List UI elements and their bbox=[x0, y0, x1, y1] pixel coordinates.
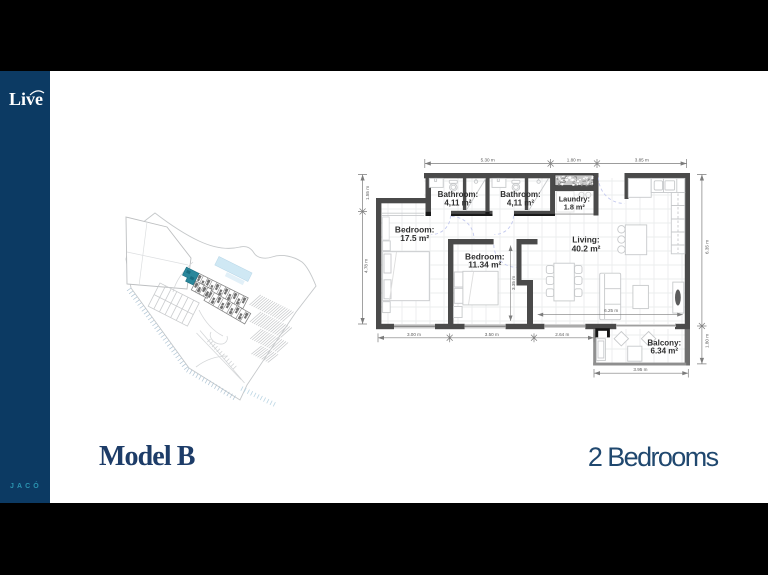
svg-text:6.25 m: 6.25 m bbox=[604, 308, 618, 313]
svg-text:40.2 m²: 40.2 m² bbox=[572, 243, 601, 253]
svg-text:3.00 m: 3.00 m bbox=[407, 332, 421, 337]
svg-text:3.50 m: 3.50 m bbox=[485, 332, 499, 337]
svg-text:3.85 m: 3.85 m bbox=[635, 157, 649, 162]
svg-text:17.5 m²: 17.5 m² bbox=[400, 233, 429, 243]
svg-text:6.34 m²: 6.34 m² bbox=[651, 347, 679, 356]
svg-text:1.80 m: 1.80 m bbox=[567, 157, 581, 162]
svg-text:1.8 m²: 1.8 m² bbox=[564, 202, 586, 211]
svg-text:1.80 m: 1.80 m bbox=[704, 334, 709, 348]
svg-text:4.78 m: 4.78 m bbox=[363, 259, 368, 273]
svg-text:1.55 m: 1.55 m bbox=[365, 186, 370, 200]
svg-text:11.34 m²: 11.34 m² bbox=[468, 259, 501, 269]
svg-text:4,11 m²: 4,11 m² bbox=[444, 198, 471, 207]
svg-text:3.35 m: 3.35 m bbox=[511, 276, 516, 290]
svg-text:5.30 m: 5.30 m bbox=[481, 157, 495, 162]
svg-text:6.35 m: 6.35 m bbox=[704, 240, 709, 254]
svg-text:4,11 m²: 4,11 m² bbox=[507, 198, 534, 207]
svg-text:2.64 m: 2.64 m bbox=[555, 332, 569, 337]
svg-text:3.95 m: 3.95 m bbox=[633, 367, 647, 372]
